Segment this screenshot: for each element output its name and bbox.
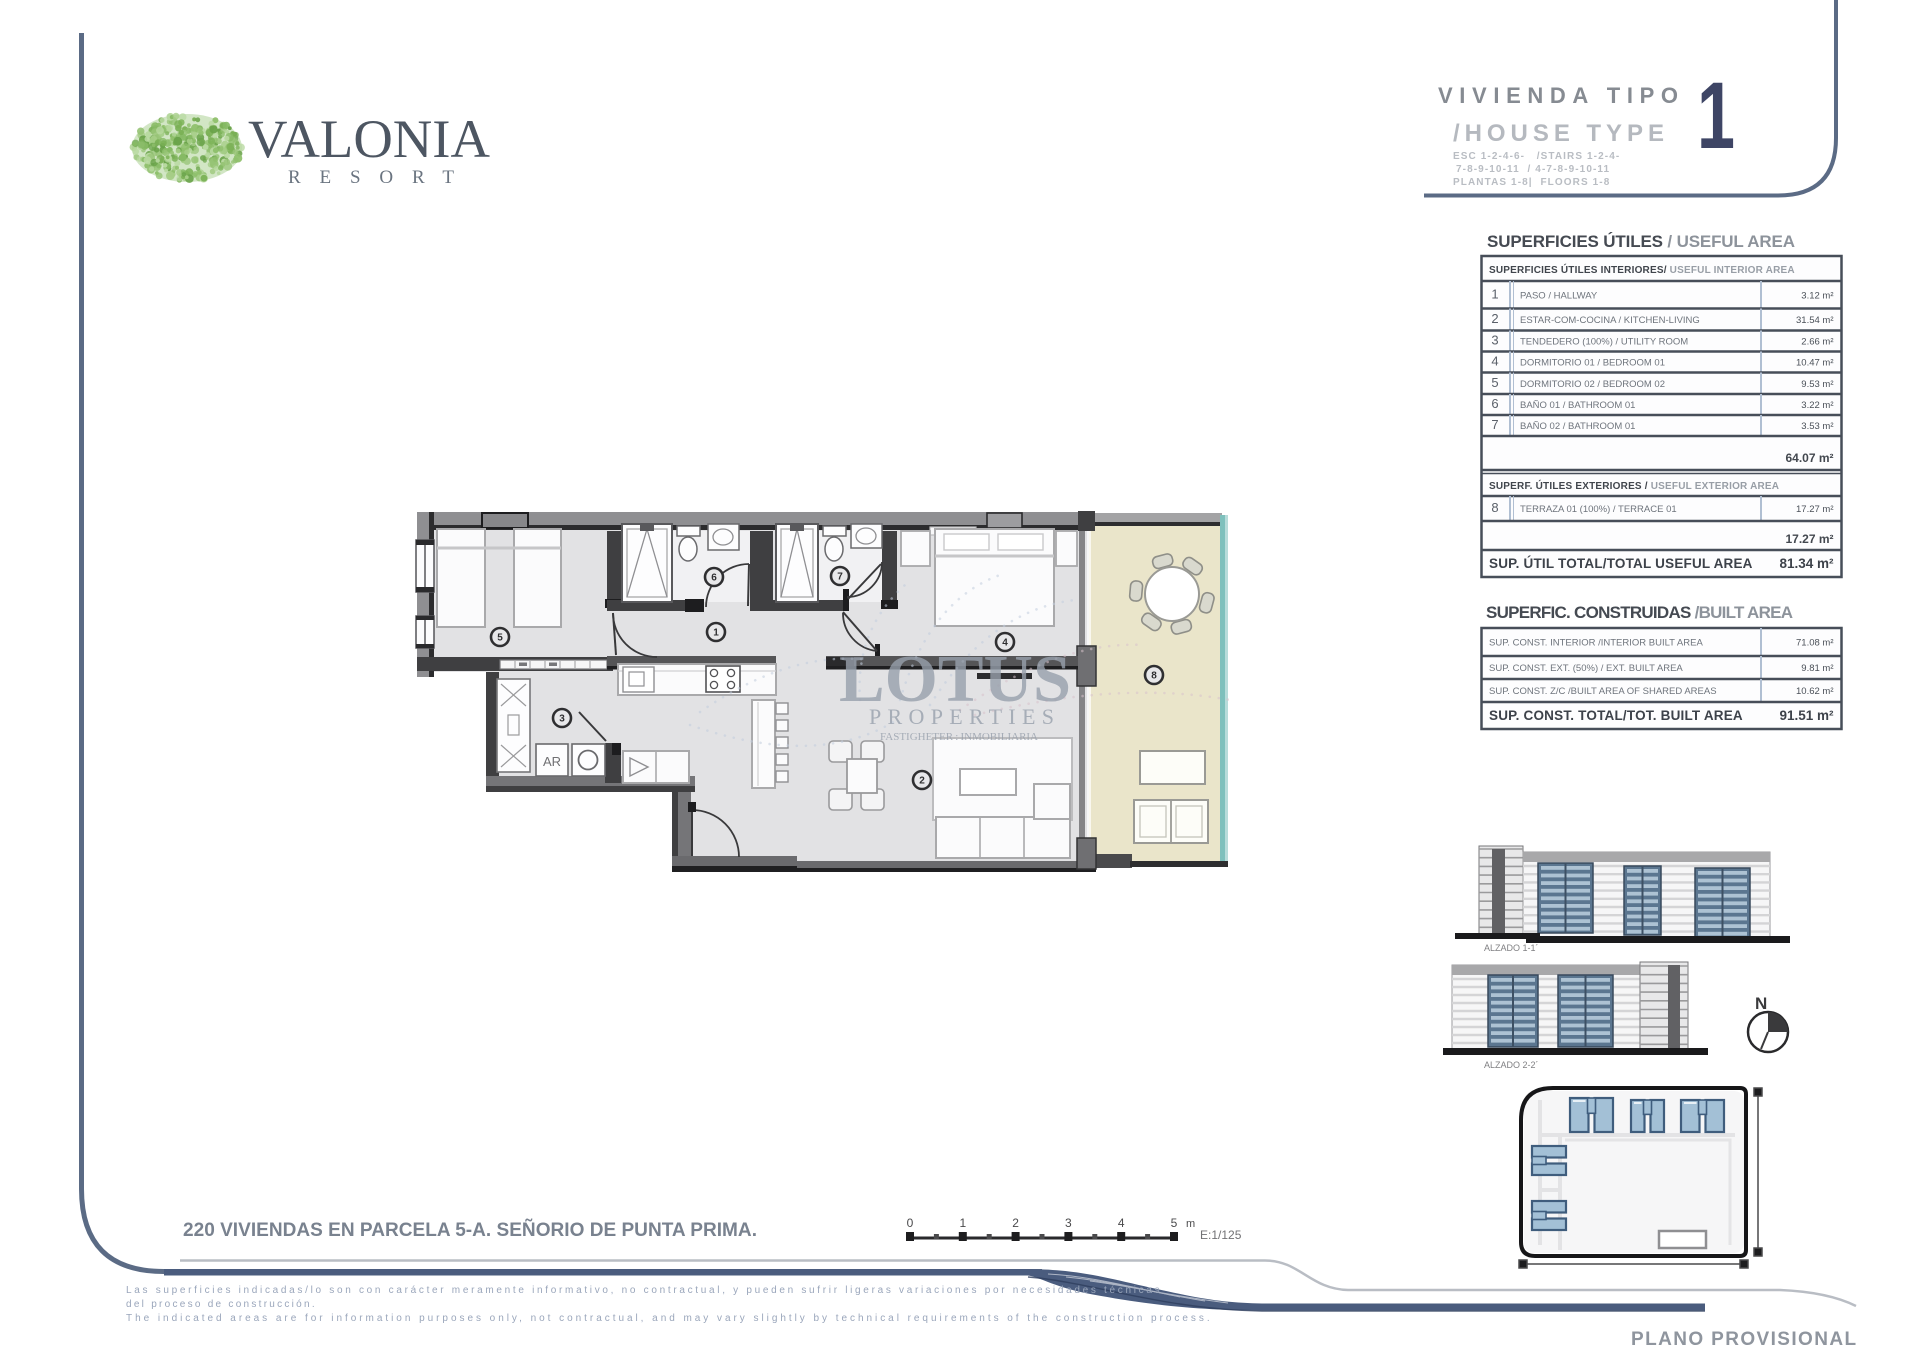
svg-text:m: m [1186,1218,1195,1230]
svg-text:2: 2 [1012,1216,1019,1230]
svg-text:VALONIA: VALONIA [248,109,490,169]
svg-text:BAÑO 01 / BATHROOM 01: BAÑO 01 / BATHROOM 01 [1520,400,1635,411]
svg-text:PROPERTIES: PROPERTIES [869,704,1054,729]
svg-text:8: 8 [1491,500,1498,515]
svg-text:Las superficies indicadas/lo s: Las superficies indicadas/lo son con car… [126,1285,1160,1296]
svg-text:7: 7 [1491,417,1498,432]
svg-text:SUPERFICIES ÚTILES INTERIORES/: SUPERFICIES ÚTILES INTERIORES/ USEFUL IN… [1489,263,1795,276]
svg-text:1: 1 [713,628,719,639]
svg-text:1: 1 [959,1216,966,1230]
svg-text:2: 2 [1491,311,1498,326]
svg-text:3: 3 [1065,1216,1072,1230]
svg-text:PLANTAS 1-8| FLOORS 1-8: PLANTAS 1-8| FLOORS 1-8 [1453,177,1610,188]
svg-text:2.66 m²: 2.66 m² [1801,337,1833,348]
svg-text:4: 4 [1118,1216,1125,1230]
svg-text:3: 3 [1491,333,1498,348]
svg-text:71.08 m²: 71.08 m² [1796,638,1834,649]
svg-text:5: 5 [497,633,503,644]
svg-text:SUP. CONST. INTERIOR /INTERIOR: SUP. CONST. INTERIOR /INTERIOR BUILT ARE… [1489,638,1703,649]
svg-text:6: 6 [1491,396,1498,411]
svg-text:5: 5 [1171,1216,1178,1230]
svg-text:PLANO PROVISIONAL: PLANO PROVISIONAL [1631,1329,1857,1350]
svg-text:3.22 m²: 3.22 m² [1801,400,1833,411]
svg-text:SUP. CONST. EXT. (50%) / EXT.: SUP. CONST. EXT. (50%) / EXT. BUILT AREA [1489,663,1683,674]
svg-text:VIVIENDA TIPO: VIVIENDA TIPO [1438,83,1678,108]
svg-text:DORMITORIO 01 / BEDROOM 01: DORMITORIO 01 / BEDROOM 01 [1520,358,1665,369]
svg-text:/HOUSE TYPE: /HOUSE TYPE [1453,120,1664,147]
svg-text:10.62 m²: 10.62 m² [1796,686,1834,697]
svg-text:220 VIVIENDAS EN PARCELA 5-A.: 220 VIVIENDAS EN PARCELA 5-A. SEÑORIO DE… [183,1219,757,1241]
svg-text:7: 7 [837,572,843,583]
svg-text:SUP. CONST. TOTAL/TOT. BUILT A: SUP. CONST. TOTAL/TOT. BUILT AREA [1489,708,1743,723]
svg-text:17.27 m²: 17.27 m² [1785,532,1833,546]
svg-text:91.51 m²: 91.51 m² [1779,708,1834,723]
svg-text:SUPERFICIES ÚTILES / USEFUL AR: SUPERFICIES ÚTILES / USEFUL AREA [1487,232,1795,251]
svg-text:DORMITORIO 02 / BEDROOM 02: DORMITORIO 02 / BEDROOM 02 [1520,379,1665,390]
svg-text:SUPERFIC. CONSTRUIDAS /BUILT A: SUPERFIC. CONSTRUIDAS /BUILT AREA [1486,603,1793,622]
svg-text:8: 8 [1151,671,1157,682]
svg-text:ESTAR-COM-COCINA / KITCHEN-LIV: ESTAR-COM-COCINA / KITCHEN-LIVING [1520,315,1700,326]
svg-text:1: 1 [1491,286,1498,301]
svg-text:SUP. CONST. Z/C /BUILT AREA OF: SUP. CONST. Z/C /BUILT AREA OF SHARED AR… [1489,686,1717,697]
svg-text:The indicated areas are for in: The indicated areas are for information … [126,1313,1210,1324]
svg-text:17.27 m²: 17.27 m² [1796,504,1834,515]
svg-text:TERRAZA 01 (100%) / TERRACE 01: TERRAZA 01 (100%) / TERRACE 01 [1520,504,1677,515]
svg-text:4: 4 [1491,354,1498,369]
svg-text:2: 2 [919,776,925,787]
svg-text:3.53 m²: 3.53 m² [1801,421,1833,432]
svg-text:FASTIGHETER : INMOBILIARIA: FASTIGHETER : INMOBILIARIA [880,731,1038,743]
svg-text:E:1/125: E:1/125 [1200,1228,1242,1242]
svg-text:31.54 m²: 31.54 m² [1796,315,1834,326]
svg-text:64.07 m²: 64.07 m² [1785,451,1833,465]
svg-text:N: N [1755,994,1767,1013]
svg-text:6: 6 [711,573,717,584]
svg-text:del proceso de construcción.: del proceso de construcción. [126,1299,315,1310]
svg-text:0: 0 [907,1216,914,1230]
svg-text:ALZADO 2-2´: ALZADO 2-2´ [1484,1060,1539,1070]
svg-text:BAÑO 02 / BATHROOM 01: BAÑO 02 / BATHROOM 01 [1520,421,1635,432]
svg-text:3: 3 [559,714,565,725]
svg-text:10.47 m²: 10.47 m² [1796,358,1834,369]
svg-text:SUP. ÚTIL TOTAL/TOTAL USEFUL A: SUP. ÚTIL TOTAL/TOTAL USEFUL AREA [1489,556,1753,571]
svg-text:RESORT: RESORT [288,167,454,188]
svg-text:TENDEDERO (100%) / UTILITY ROO: TENDEDERO (100%) / UTILITY ROOM [1520,337,1688,348]
svg-text:ALZADO 1-1´: ALZADO 1-1´ [1484,943,1539,953]
svg-text:7-8-9-10-11 / 4-7-8-9-10-11: 7-8-9-10-11 / 4-7-8-9-10-11 [1456,164,1610,175]
svg-text:SUPERF. ÚTILES EXTERIORES / US: SUPERF. ÚTILES EXTERIORES / USEFUL EXTER… [1489,479,1779,492]
svg-text:PASO / HALLWAY: PASO / HALLWAY [1520,290,1598,301]
svg-text:5: 5 [1491,375,1498,390]
svg-text:ESC 1-2-4-6- /STAIRS 1-2-4-: ESC 1-2-4-6- /STAIRS 1-2-4- [1453,151,1620,162]
svg-text:1: 1 [1697,63,1735,169]
svg-text:81.34 m²: 81.34 m² [1779,556,1834,571]
svg-text:9.81 m²: 9.81 m² [1801,663,1833,674]
svg-text:3.12 m²: 3.12 m² [1801,290,1833,301]
svg-text:AR: AR [543,754,561,769]
svg-text:9.53 m²: 9.53 m² [1801,379,1833,390]
